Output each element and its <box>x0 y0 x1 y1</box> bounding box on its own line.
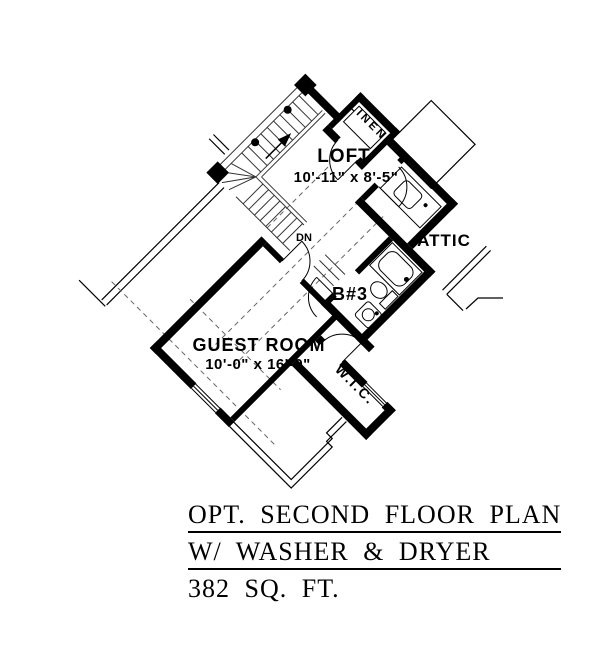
floor-plan-page: LOFT 10'-11" x 8'-5" ATTIC B#3 GUEST ROO… <box>0 0 600 669</box>
guest-room-label: GUEST ROOM <box>192 335 325 355</box>
wall-wic-end <box>360 405 395 440</box>
loft-label: LOFT <box>317 146 371 167</box>
loft-dims: 10'-11" x 8'-5" <box>294 169 399 186</box>
guest-room-dims: 10'-0" x 16'-0" <box>205 356 311 373</box>
bathroom-label: B#3 <box>332 284 368 304</box>
building-rotated-group <box>73 9 568 504</box>
walls <box>90 55 537 502</box>
roof-hip-line <box>466 298 503 309</box>
wall-bath-right <box>356 266 435 345</box>
wic-label: W.I.C. <box>332 361 379 408</box>
wall-guest-bottom <box>150 342 197 389</box>
guest-room-window <box>191 384 219 412</box>
attic-roof-outline <box>387 101 475 189</box>
roof-eave-lines <box>73 9 555 491</box>
wall-bath-left <box>355 236 393 274</box>
wall-post-bottom <box>206 161 229 184</box>
plan-title: OPT. SECOND FLOOR PLAN <box>188 500 561 533</box>
labels: LOFT 10'-11" x 8'-5" ATTIC B#3 GUEST ROO… <box>192 101 470 408</box>
wall-guest-top <box>263 242 284 263</box>
plan-subtitle: W/ WASHER & DRYER <box>188 537 561 570</box>
title-block: OPT. SECOND FLOOR PLAN W/ WASHER & DRYER… <box>188 500 561 604</box>
guest-room-door <box>282 241 322 281</box>
stair-dn-label: DN <box>296 232 312 244</box>
attic-label: ATTIC <box>417 231 471 250</box>
plan-area: 382 SQ. FT. <box>188 574 561 604</box>
